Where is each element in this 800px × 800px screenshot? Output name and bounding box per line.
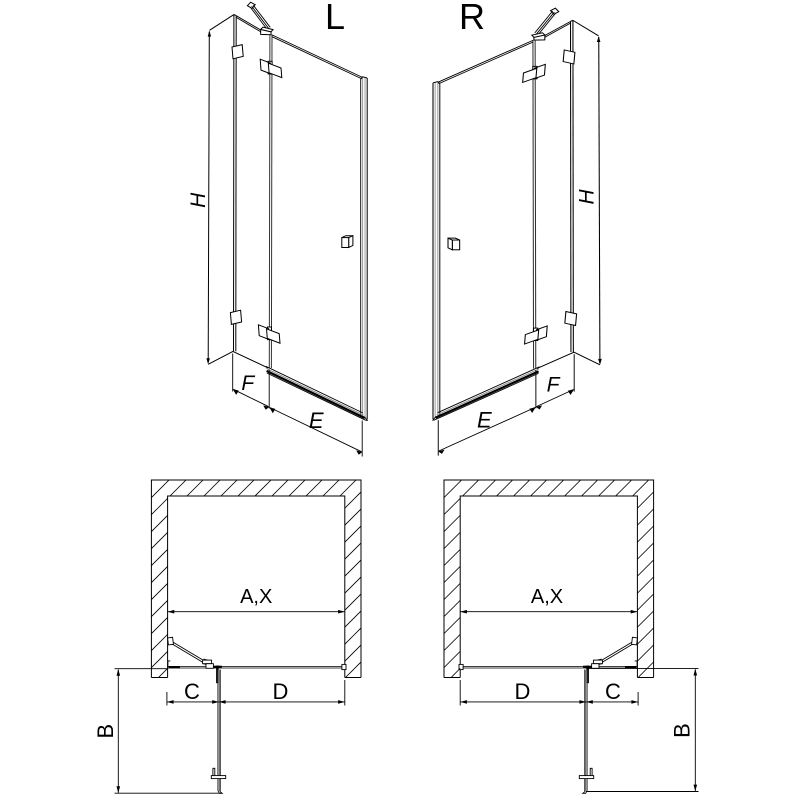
svg-text:A,X: A,X: [531, 586, 563, 608]
svg-text:C: C: [184, 679, 200, 704]
svg-text:B: B: [669, 723, 694, 738]
svg-text:D: D: [273, 679, 289, 704]
svg-text:E: E: [309, 408, 324, 433]
svg-text:H: H: [187, 192, 210, 208]
svg-text:H: H: [576, 188, 599, 204]
svg-text:E: E: [477, 408, 492, 433]
svg-text:L: L: [325, 0, 345, 37]
svg-text:F: F: [547, 374, 561, 397]
svg-text:A,X: A,X: [240, 586, 272, 608]
svg-text:C: C: [605, 679, 621, 704]
svg-text:B: B: [93, 724, 118, 739]
svg-text:D: D: [515, 679, 531, 704]
svg-text:R: R: [459, 0, 485, 37]
svg-text:F: F: [241, 372, 255, 395]
